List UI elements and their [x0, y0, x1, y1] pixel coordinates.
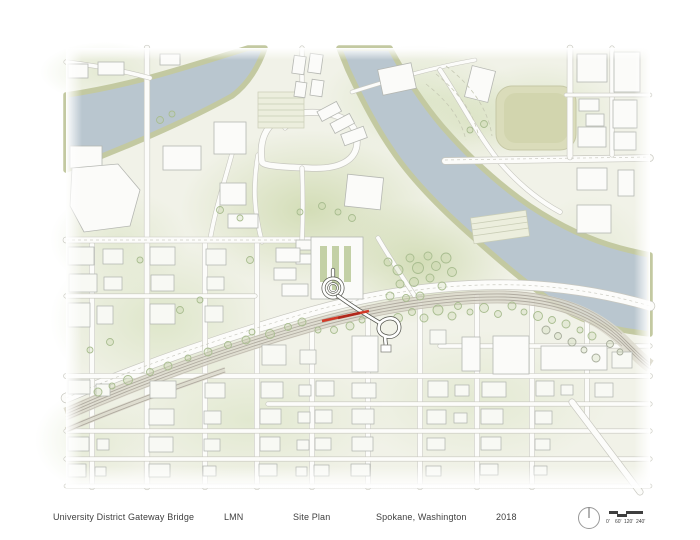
scale-label-120: 120': [624, 519, 633, 525]
project-title: University District Gateway Bridge: [53, 512, 194, 522]
north-arrow-icon: [576, 505, 602, 531]
firm-name: LMN: [224, 512, 243, 522]
scale-bar: 0' 60' 120' 240': [604, 508, 652, 530]
site-plan-map: [0, 0, 700, 540]
scale-label-60: 60': [615, 519, 622, 525]
year-label: 2018: [496, 512, 517, 522]
site-plan-board: University District Gateway Bridge LMN S…: [0, 0, 700, 540]
location-label: Spokane, Washington: [376, 512, 467, 522]
scale-label-240: 240': [636, 519, 645, 525]
sheet-name: Site Plan: [293, 512, 330, 522]
scale-label-0: 0': [606, 519, 610, 525]
